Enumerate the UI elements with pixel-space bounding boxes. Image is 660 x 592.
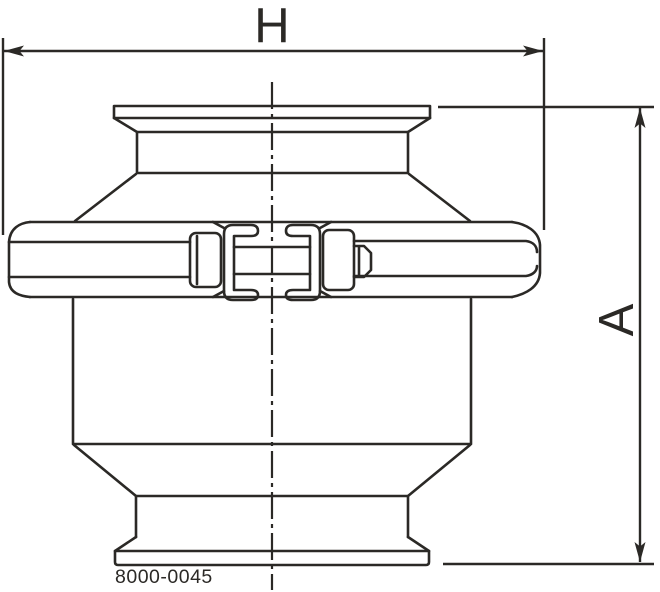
clamp-left-end-cap	[9, 222, 30, 297]
clamp-left-inner-lines	[9, 242, 190, 277]
part-number: 8000-0045	[115, 566, 213, 588]
clamp-right-end-nose	[512, 222, 540, 297]
clamp-right-lug	[323, 230, 354, 290]
clamp-ring	[9, 222, 540, 300]
clamp-left-yoke	[224, 225, 258, 300]
clamp-right-yoke	[286, 225, 320, 300]
drawing-svg: H A	[0, 0, 660, 592]
h-dimension-label: H	[254, 0, 289, 53]
a-dimension-label: A	[590, 303, 644, 336]
clamp-bolt-assembly	[190, 225, 371, 300]
clamp-bolt-tip	[354, 246, 371, 277]
clamp-left-lug	[190, 233, 221, 287]
valve-outline	[9, 106, 540, 565]
clamp-right-inner-lines	[354, 241, 537, 276]
valve-technical-drawing: H A	[0, 0, 660, 592]
